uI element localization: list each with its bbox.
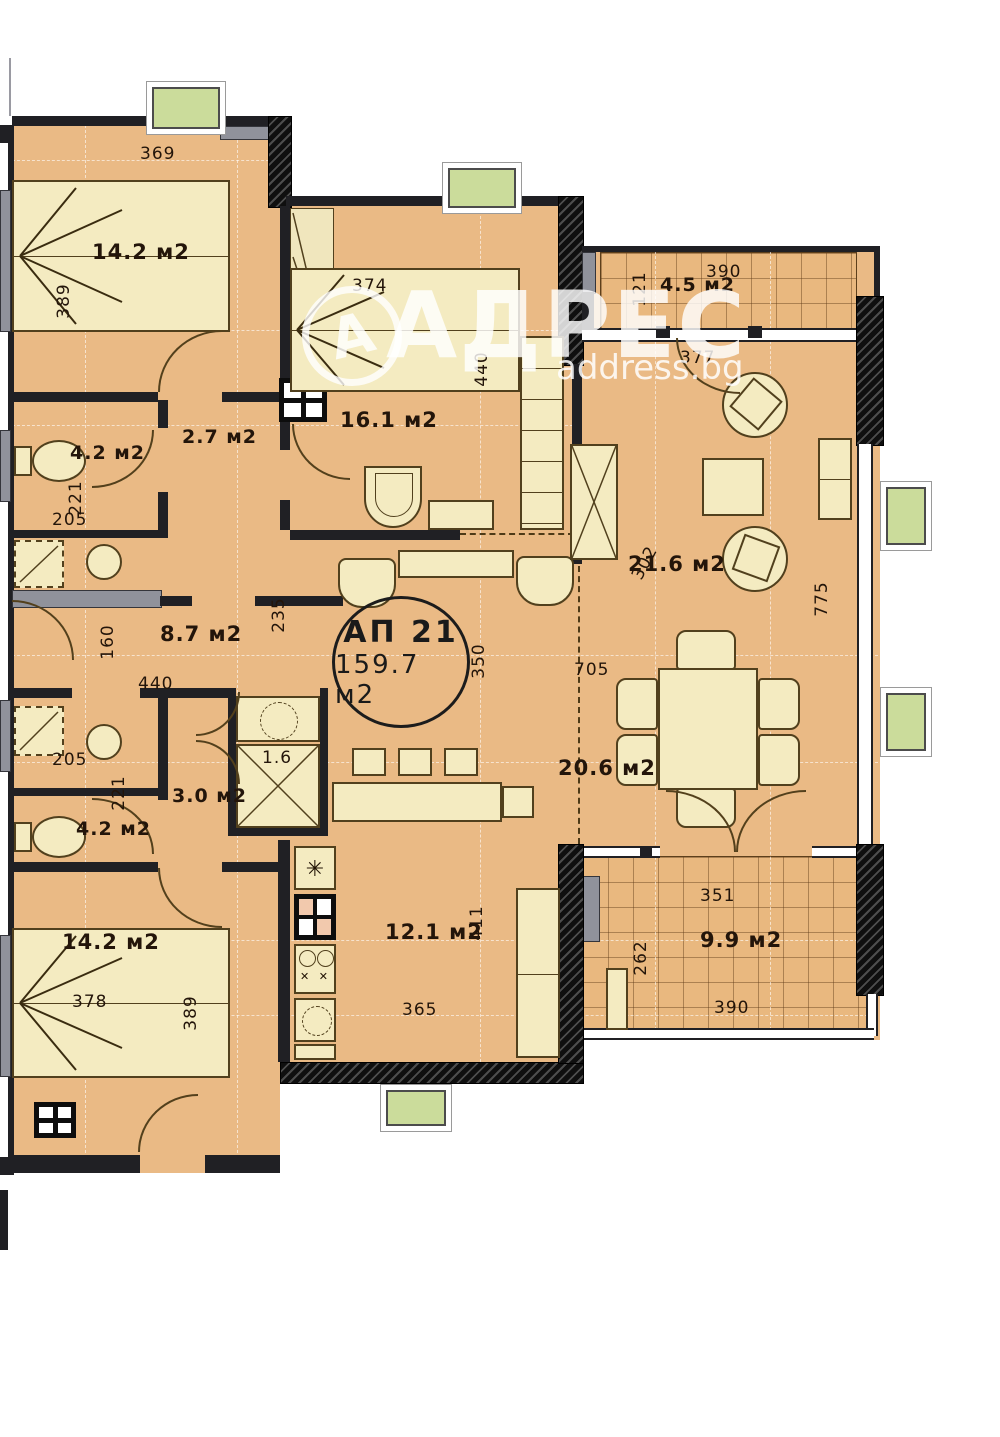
opening-dashed [578, 566, 580, 844]
window-sill [0, 430, 11, 502]
wall-bath-bottom-divider [12, 788, 168, 796]
kitchen-sofa [516, 888, 560, 1058]
wall-balcony-right [874, 252, 880, 300]
dining-terrace-window [812, 846, 856, 858]
dining-chair [616, 678, 658, 730]
wardrobe [570, 444, 618, 560]
wall-closet-bottom [228, 828, 328, 836]
wall-bath-top-divider [12, 530, 168, 538]
dim-389-top: 389 [54, 269, 74, 333]
window-sill [0, 700, 11, 772]
bar-stool [444, 748, 478, 776]
desk [428, 500, 494, 530]
room-label-bedroom-tl: 14.2 м2 [92, 240, 190, 264]
wall-corridor-left [280, 500, 290, 530]
room-label-bath-top: 4.2 м2 [70, 442, 145, 464]
wall-hall-bottom [12, 688, 72, 698]
wall-stub [0, 1157, 12, 1175]
dim-389-bottom: 389 [181, 981, 201, 1045]
shower [14, 540, 64, 588]
wall-stub [0, 125, 12, 143]
balcony-divider-sill [582, 252, 596, 294]
bar-stool [398, 748, 432, 776]
wall-closet-right [320, 688, 328, 836]
axis-line [770, 246, 771, 1040]
window-sill [220, 126, 270, 140]
closet-shelf [236, 696, 320, 742]
stove [294, 894, 336, 940]
wall-top-right [582, 246, 880, 252]
fridge-icon: ✳ [306, 857, 324, 882]
shower [14, 706, 64, 756]
room-label-dining: 20.6 м2 [558, 756, 656, 780]
room-label-hall: 8.7 м2 [160, 622, 242, 646]
opening-dashed [460, 533, 574, 535]
dim-440-bedroom: 440 [472, 337, 492, 401]
pillar [386, 1090, 446, 1126]
wall-bedroom-tl-bottom [12, 392, 158, 402]
dim-775: 775 [812, 567, 832, 631]
window-sill [0, 190, 11, 332]
dim-369: 369 [140, 144, 175, 164]
room-label-bedroom-bl: 14.2 м2 [62, 930, 160, 954]
unit-badge: АП 21 159.7 м2 [332, 596, 470, 728]
oven [294, 998, 336, 1042]
dim-411: 411 [467, 891, 487, 955]
dim-374: 374 [352, 276, 387, 296]
room-label-corridor: 2.7 м2 [182, 426, 257, 448]
dim-160: 160 [98, 610, 118, 674]
wall-bath-bottom-right [158, 688, 168, 800]
wash-basin [86, 544, 122, 580]
window-sill [0, 935, 11, 1077]
dim-390-terrace: 390 [714, 998, 749, 1018]
window-mullion [640, 846, 652, 858]
dining-table [658, 668, 758, 790]
wall-bath-top-right [158, 400, 168, 428]
site-line [9, 58, 11, 116]
wall-hall-top [160, 596, 192, 606]
dim-440-hall: 440 [138, 674, 173, 694]
wall-bottom-bedroom [12, 1155, 140, 1173]
dim-390-balcony: 390 [706, 262, 741, 282]
wall-corner [268, 116, 292, 208]
wall-bedroom-bl-top [222, 862, 280, 872]
dining-chair [758, 678, 800, 730]
dim-205-bottom: 205 [52, 750, 87, 770]
unit-area: 159.7 м2 [335, 650, 467, 710]
wall-bedroom-mid-bottom [290, 530, 460, 540]
unit-id: АП 21 [343, 615, 459, 650]
duct-shaft [34, 1102, 76, 1138]
dim-705: 705 [574, 660, 609, 680]
pillar [152, 87, 220, 129]
dim-262: 262 [631, 926, 651, 990]
side-table [398, 550, 514, 578]
wall-bottom-bedroom [205, 1155, 280, 1173]
wall-top-left [12, 116, 274, 126]
dim-205-top: 205 [52, 510, 87, 530]
dim-221-bottom: 221 [109, 761, 129, 825]
dining-chair [758, 734, 800, 786]
dim-350: 350 [469, 629, 489, 693]
room-label-bedroom-mid: 16.1 м2 [340, 408, 438, 432]
dim-378: 378 [72, 992, 107, 1012]
pillar [448, 168, 516, 208]
room-label-closet: 3.0 м2 [172, 785, 247, 807]
dim-121: 121 [630, 257, 650, 321]
wash-basin [86, 724, 122, 760]
wall-corridor-left [280, 206, 290, 378]
wall-bedroom-tl-bottom [222, 392, 280, 402]
wall-kitchen-left [278, 840, 290, 1062]
pillar [886, 693, 926, 751]
axis-line [12, 160, 578, 161]
axis-line [655, 246, 656, 1040]
counter-end [502, 786, 534, 818]
fridge: ✳ [294, 846, 336, 890]
pillar [886, 487, 926, 545]
terrace-bench [606, 968, 628, 1030]
kitchen-cabinet [294, 1044, 336, 1060]
wall-corridor-left [280, 422, 290, 450]
kitchen-sink: ✕ ✕ [294, 944, 336, 994]
bar-stool [352, 748, 386, 776]
sofa [818, 438, 852, 520]
dim-235: 235 [269, 583, 289, 647]
dim-377: 377 [680, 348, 715, 368]
window-mullion [748, 326, 762, 338]
burner-marks: ✕ ✕ [300, 970, 331, 983]
dim-365: 365 [402, 1000, 437, 1020]
chair [364, 466, 422, 528]
wall-right-upper [856, 296, 884, 446]
room-label-terrace: 9.9 м2 [700, 928, 782, 952]
window-mullion [656, 326, 670, 338]
toilet-tank [14, 446, 32, 476]
wall-bath-top-right [158, 492, 168, 532]
bar-counter [332, 782, 502, 822]
floor-plan: ✳ ✕ ✕ АП [0, 0, 1000, 1437]
wall-bottom-kitchen [280, 1062, 584, 1084]
wall-bedroom-bl-top [12, 862, 158, 872]
armchair [516, 556, 574, 606]
wall-stub-bottom [0, 1190, 8, 1250]
window-right [857, 444, 873, 844]
wall-right-lower [856, 844, 884, 996]
dining-chair [676, 630, 736, 670]
wall-kitchen-terrace [558, 844, 584, 1064]
room-label-closet-small: 1.6 [262, 748, 292, 768]
coffee-table [702, 458, 764, 516]
toilet-tank [14, 822, 32, 852]
wall-top-mid [286, 196, 582, 206]
wardrobe [520, 336, 564, 530]
dim-351: 351 [700, 886, 735, 906]
